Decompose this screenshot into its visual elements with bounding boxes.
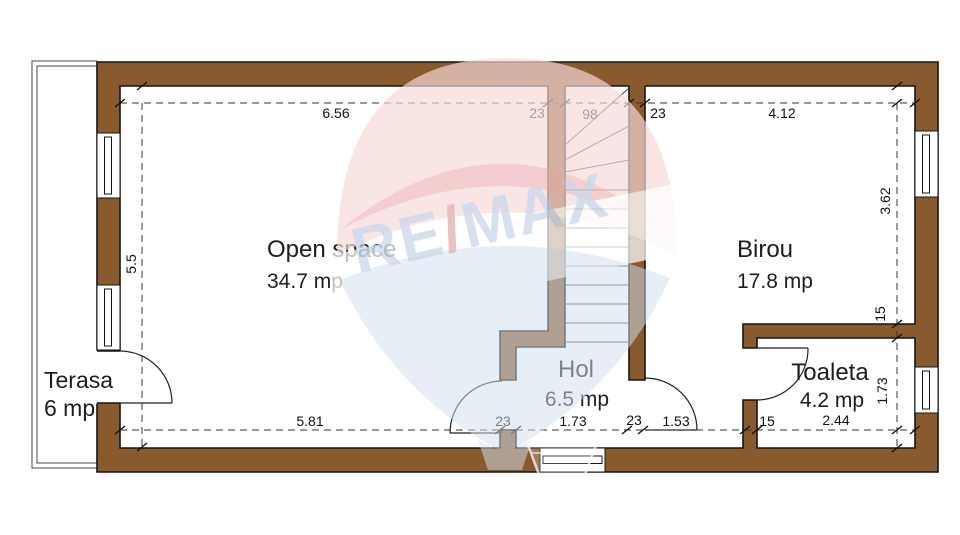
floor-plan-page: 6.56 23 98 23 4.12 5.81 23 1.73 23 1.53 … [0,0,960,535]
toaleta-area: 4.2 mp [800,389,864,412]
window-left-top [97,133,120,198]
dim-bottom-post-right: 23 [626,412,642,428]
dim-top-open-space: 6.56 [322,105,349,121]
toaleta-left-wall [743,400,757,449]
dim-left-height: 5.5 [123,254,139,274]
dim-bottom-open-space: 5.81 [296,413,323,429]
dim-bottom-toaleta: 2.44 [822,412,849,428]
birou-label: Birou [737,236,793,263]
dim-top-wall-right: 23 [650,105,666,121]
dim-bottom-passage: 1.53 [662,413,689,429]
terasa-label: Terasa [44,367,113,393]
window-right-birou [915,131,938,197]
floor-plan: 6.56 23 98 23 4.12 5.81 23 1.73 23 1.53 … [0,0,960,535]
birou-area: 17.8 mp [737,270,813,293]
terasa-area: 6 mp [44,395,95,421]
dim-right-wall: 15 [872,306,888,322]
dim-right-birou: 3.62 [877,187,893,214]
window-left-bottom [97,285,120,350]
dim-bottom-hol: 1.73 [559,413,586,429]
window-right-toaleta [915,367,938,413]
dim-right-toaleta: 1.73 [874,377,890,404]
dim-bottom-toaleta-wall: 15 [759,413,775,429]
toaleta-label: Toaleta [791,359,869,386]
dim-top-birou: 4.12 [768,105,795,121]
